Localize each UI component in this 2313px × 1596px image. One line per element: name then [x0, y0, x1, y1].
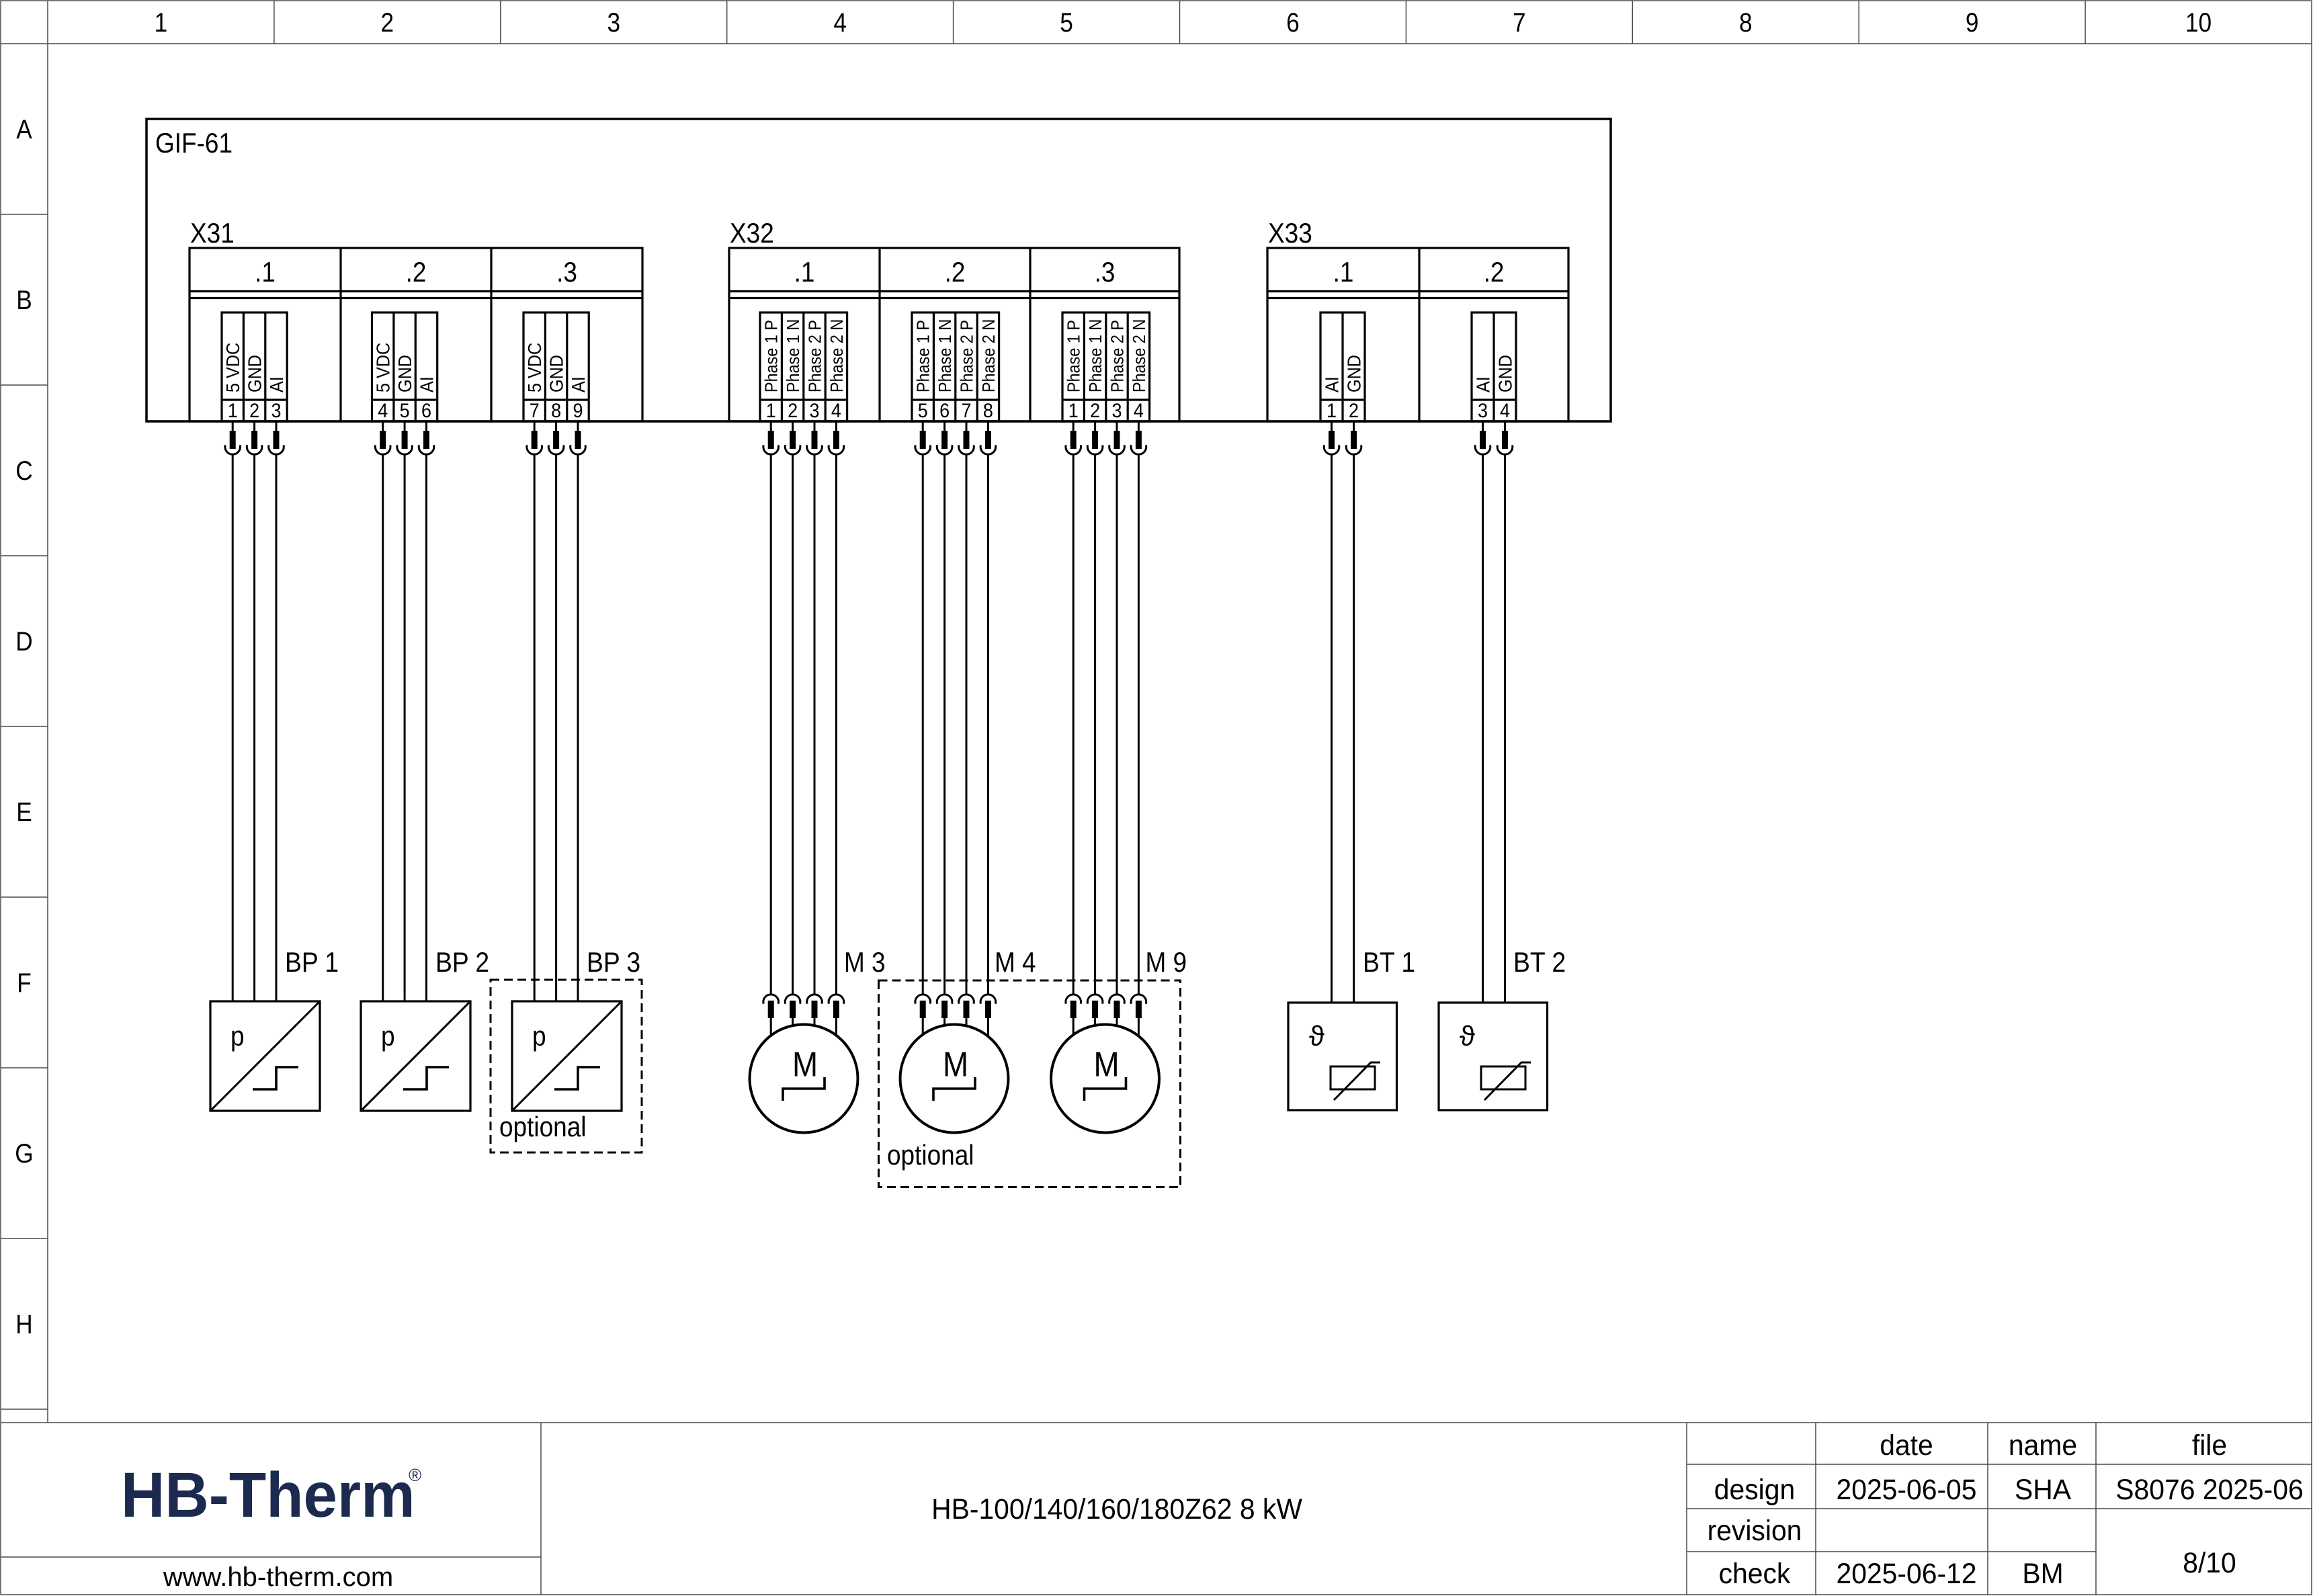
svg-text:E: E: [16, 798, 32, 827]
svg-text:8: 8: [983, 400, 993, 422]
svg-text:design: design: [1714, 1474, 1795, 1506]
svg-text:Phase 2 P: Phase 2 P: [1107, 320, 1128, 392]
svg-text:1: 1: [1068, 400, 1079, 422]
svg-text:3: 3: [1478, 400, 1488, 422]
svg-text:4: 4: [1134, 400, 1144, 422]
svg-text:1: 1: [155, 8, 168, 38]
svg-text:Phase 2 P: Phase 2 P: [957, 320, 977, 392]
svg-text:X31: X31: [190, 217, 235, 249]
svg-text:5: 5: [400, 400, 410, 422]
svg-text:.3: .3: [556, 256, 577, 288]
svg-text:.3: .3: [1095, 256, 1116, 288]
svg-text:M: M: [792, 1046, 818, 1085]
svg-text:5: 5: [1060, 8, 1073, 38]
svg-text:7: 7: [530, 400, 540, 422]
svg-text:Phase 1 N: Phase 1 N: [1085, 319, 1105, 392]
svg-text:6: 6: [939, 400, 950, 422]
svg-text:1: 1: [228, 400, 238, 422]
svg-text:Phase 2 N: Phase 2 N: [1129, 319, 1149, 392]
svg-text:7: 7: [962, 400, 972, 422]
svg-text:AI: AI: [417, 376, 437, 392]
svg-text:Phase 1 N: Phase 1 N: [783, 319, 803, 392]
svg-text:B: B: [16, 286, 32, 315]
svg-text:AI: AI: [1473, 376, 1494, 392]
svg-text:GND: GND: [1344, 355, 1365, 392]
svg-text:GND: GND: [1495, 355, 1516, 392]
svg-text:HB-100/140/160/180Z62 8 kW: HB-100/140/160/180Z62 8 kW: [931, 1493, 1302, 1525]
svg-text:3: 3: [1112, 400, 1122, 422]
svg-text:.2: .2: [1484, 256, 1505, 288]
svg-text:9: 9: [1966, 8, 1979, 38]
svg-text:3: 3: [810, 400, 820, 422]
svg-text:6: 6: [421, 400, 431, 422]
svg-text:5 VDC: 5 VDC: [524, 343, 545, 392]
svg-text:2: 2: [1090, 400, 1100, 422]
svg-text:M 9: M 9: [1146, 946, 1187, 978]
svg-text:SHA: SHA: [2015, 1474, 2071, 1506]
svg-text:GND: GND: [546, 355, 567, 392]
svg-text:p: p: [381, 1020, 395, 1052]
svg-text:1: 1: [766, 400, 776, 422]
svg-text:6: 6: [1286, 8, 1300, 38]
svg-text:5 VDC: 5 VDC: [222, 343, 243, 392]
svg-text:BT 2: BT 2: [1513, 946, 1566, 978]
svg-text:Phase 1 P: Phase 1 P: [1064, 320, 1084, 392]
svg-text:Phase 2 N: Phase 2 N: [978, 319, 999, 392]
svg-text:5 VDC: 5 VDC: [373, 343, 394, 392]
svg-text:M 4: M 4: [995, 946, 1036, 978]
svg-text:file: file: [2192, 1429, 2227, 1462]
svg-text:BT 1: BT 1: [1363, 946, 1415, 978]
svg-text:BP 1: BP 1: [285, 946, 339, 978]
svg-text:D: D: [15, 627, 32, 657]
svg-text:X33: X33: [1268, 217, 1312, 249]
svg-text:F: F: [17, 968, 32, 998]
svg-text:Phase 1 N: Phase 1 N: [935, 319, 955, 392]
svg-text:10: 10: [2185, 8, 2212, 38]
svg-text:®: ®: [409, 1465, 421, 1485]
svg-text:8: 8: [1739, 8, 1753, 38]
svg-text:optional: optional: [499, 1111, 587, 1142]
svg-text:4: 4: [833, 8, 847, 38]
svg-text:GND: GND: [245, 355, 265, 392]
svg-text:.2: .2: [945, 256, 966, 288]
svg-text:www.hb-therm.com: www.hb-therm.com: [163, 1562, 393, 1592]
svg-text:H: H: [15, 1310, 32, 1339]
svg-text:2: 2: [249, 400, 259, 422]
svg-text:optional: optional: [887, 1139, 974, 1171]
svg-text:G: G: [15, 1139, 33, 1169]
svg-text:BP 2: BP 2: [435, 946, 489, 978]
svg-text:8: 8: [551, 400, 561, 422]
svg-text:4: 4: [378, 400, 388, 422]
svg-text:HB-Therm: HB-Therm: [121, 1460, 415, 1531]
svg-text:M: M: [943, 1046, 968, 1085]
svg-text:2025-06-05: 2025-06-05: [1837, 1474, 1977, 1506]
svg-text:p: p: [230, 1020, 245, 1052]
svg-text:BP 3: BP 3: [587, 946, 640, 978]
svg-text:Phase 2 P: Phase 2 P: [805, 320, 825, 392]
svg-text:p: p: [532, 1020, 546, 1052]
svg-text:AI: AI: [266, 376, 287, 392]
svg-text:.2: .2: [406, 256, 427, 288]
svg-text:9: 9: [573, 400, 583, 422]
svg-text:Phase 2 N: Phase 2 N: [827, 319, 847, 392]
svg-text:C: C: [15, 456, 32, 486]
svg-text:3: 3: [607, 8, 620, 38]
svg-text:check: check: [1719, 1558, 1791, 1590]
svg-text:AI: AI: [1322, 376, 1343, 392]
svg-text:2: 2: [788, 400, 798, 422]
svg-text:2025-06-12: 2025-06-12: [1837, 1558, 1977, 1590]
svg-text:X32: X32: [730, 217, 774, 249]
svg-text:Phase 1 P: Phase 1 P: [761, 320, 782, 392]
svg-text:GND: GND: [394, 355, 415, 392]
svg-text:8/10: 8/10: [2183, 1547, 2236, 1579]
svg-text:3: 3: [271, 400, 282, 422]
svg-text:4: 4: [831, 400, 841, 422]
svg-text:.1: .1: [1333, 256, 1354, 288]
svg-text:7: 7: [1513, 8, 1526, 38]
svg-text:name: name: [2009, 1429, 2077, 1462]
svg-text:.1: .1: [794, 256, 815, 288]
svg-text:ϑ: ϑ: [1309, 1020, 1324, 1052]
svg-text:revision: revision: [1708, 1515, 1802, 1547]
svg-text:AI: AI: [568, 376, 589, 392]
svg-text:GIF-61: GIF-61: [155, 127, 233, 159]
svg-text:BM: BM: [2022, 1558, 2063, 1590]
svg-text:ϑ: ϑ: [1460, 1020, 1475, 1052]
svg-text:2: 2: [381, 8, 394, 38]
svg-text:M 3: M 3: [844, 946, 886, 978]
svg-text:M: M: [1093, 1046, 1119, 1085]
svg-text:S8076 2025-06: S8076 2025-06: [2115, 1474, 2303, 1506]
svg-text:.1: .1: [255, 256, 276, 288]
svg-text:5: 5: [918, 400, 928, 422]
svg-text:Phase 1 P: Phase 1 P: [913, 320, 933, 392]
svg-text:A: A: [16, 115, 32, 144]
svg-text:2: 2: [1349, 400, 1359, 422]
svg-text:1: 1: [1327, 400, 1337, 422]
svg-text:4: 4: [1500, 400, 1510, 422]
svg-text:date: date: [1880, 1429, 1933, 1462]
